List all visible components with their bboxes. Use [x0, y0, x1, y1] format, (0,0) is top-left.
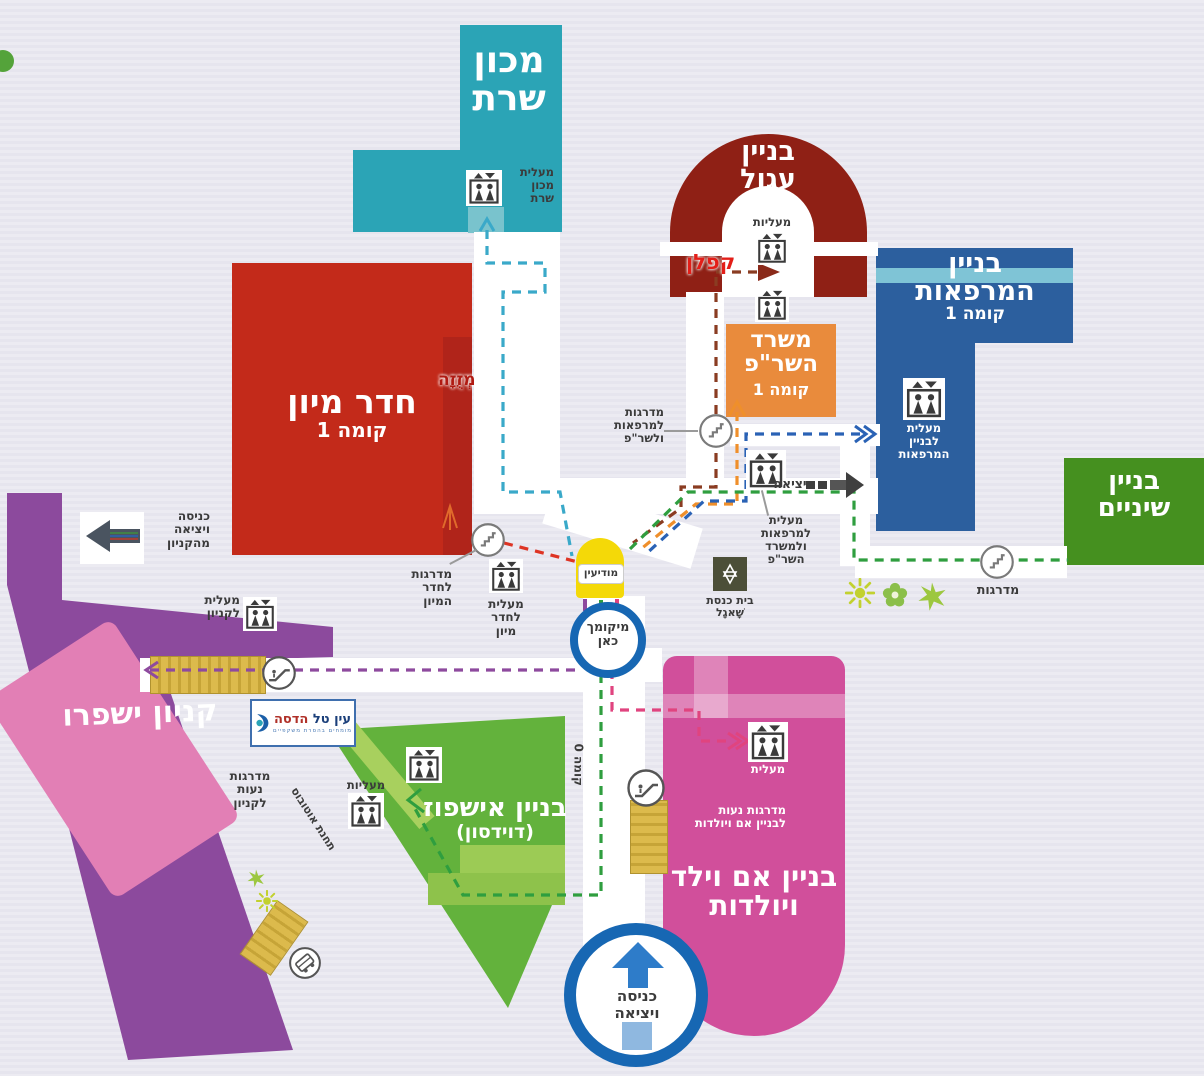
bus-station-icon: [288, 946, 322, 980]
elevator-icon-round-1: [755, 231, 789, 265]
corridor-sharap-vertical: [686, 292, 724, 482]
corridor-sharett-vertical: [474, 232, 560, 482]
building-dental-label: בניין שיניים: [1072, 468, 1196, 523]
exit-arrow-icon: [804, 470, 866, 500]
ein-tal-logo-tagline: מומחים בהסרת משקפיים: [273, 728, 352, 734]
stairs-dental-label: מדרגות: [966, 583, 1030, 597]
info-kiosk-label: מודיעין: [584, 568, 618, 580]
elevator-icon-davidson-1: [406, 747, 442, 783]
building-er-label: חדר מיון: [252, 385, 452, 420]
entrance-exit-label: כניסה ויציאה: [592, 988, 682, 1022]
elevator-sharett-label: מעלית מכון שרת: [502, 166, 554, 205]
synagogue-label: בית כנסת שָׁאגָל: [694, 595, 766, 620]
escalator-mother-child-label: מדרגות נעות לבניין אם ויולדות: [662, 804, 786, 830]
building-sharap-floor: קומה 1: [728, 382, 834, 399]
entrance-arrow-tail: [622, 1022, 652, 1050]
hospital-campus-map: מודיעין מיקומך כאן כניסה ויציאה מכון שרת…: [0, 0, 1204, 1076]
star-of-david-icon: [718, 562, 742, 586]
ein-tal-logo-name2: הדסה: [274, 712, 308, 727]
you-are-here-label: מיקומך כאן: [578, 620, 638, 648]
elevator-icon-clinics: [903, 378, 945, 420]
elevator-icon-mall: [243, 597, 277, 631]
elevators-round-label: מעליות: [742, 216, 802, 229]
escalator-band-mall: [150, 656, 266, 694]
building-sharett-label: מכון שרת: [448, 42, 570, 118]
elevator-icon-mother-child: [748, 722, 788, 762]
ein-tal-logo-icon: [254, 712, 270, 734]
stairs-icon-clinics: [698, 413, 734, 449]
building-clinics-floor: קומה 1: [880, 306, 1070, 324]
corridor-blue-route: [730, 424, 880, 446]
stairs-icon-er: [470, 522, 506, 558]
connector-stairs-clinics: [664, 430, 698, 432]
building-sharap-label: משרד השר"פ: [728, 328, 834, 376]
building-davidson-label: בניין אישפוז: [415, 795, 575, 822]
building-clinics-label: בניין המרפאות: [880, 250, 1070, 307]
elevator-mother-child-label: מעלית: [744, 763, 792, 776]
escalator-icon-mother-child: [626, 768, 666, 808]
elevator-clinics-label: מעלית לבניין המרפאות: [888, 422, 960, 461]
stairs-er-label: מדרגות לחדר המיון: [388, 568, 452, 608]
ein-tal-logo-box: עין טל הדסה מומחים בהסרת משקפיים: [250, 699, 356, 747]
flower-sun-icon-right: [845, 578, 875, 608]
elevator-er-label: מעלית לחדר מיון: [478, 598, 534, 638]
elevators-davidson-label: מעליות: [336, 779, 396, 792]
building-mother-child-band-h: [663, 694, 845, 718]
elevator-icon-round-2: [755, 288, 789, 322]
elevator-icon-er: [489, 559, 523, 593]
info-kiosk-label-box: מודיעין: [578, 564, 624, 584]
flower-star-icon-right: [916, 580, 948, 612]
corridor-to-dental: [855, 546, 1067, 578]
synagogue-icon: [713, 557, 747, 591]
corner-green-dot: [0, 50, 14, 72]
entrance-arrow-icon: [606, 938, 670, 988]
building-sharett-stub: [468, 207, 504, 233]
flower-star-icon-bus: [246, 868, 266, 888]
exit-label: יציאה: [770, 477, 810, 491]
elevator-icon-davidson-2: [348, 793, 384, 829]
flower-sun-icon-bus: [256, 890, 278, 912]
ein-tal-logo-name1: עין טל: [313, 712, 351, 727]
stairs-clinics-sharap-label: מדרגות למרפאות ולשר"פ: [590, 406, 664, 445]
building-davidson-sublabel: (דוידסון): [415, 823, 575, 843]
annotation-kaplan: קפלן: [686, 250, 735, 274]
building-er-floor: קומה 1: [252, 420, 452, 441]
floor0-label: קומה 0: [571, 735, 584, 795]
building-mall-label: קניון ישפרו: [55, 695, 226, 732]
building-mother-child-label: בניין אם וילד ויולדות: [668, 862, 840, 921]
mall-exit-label: כניסה ויציאה מהקניון: [146, 510, 210, 550]
building-mother-child-band-v: [694, 656, 728, 718]
escalator-icon-mall: [261, 655, 297, 691]
elevator-icon-sharett: [466, 170, 502, 206]
elevator-mall-label: מעלית לקניון: [180, 594, 240, 621]
elevator-clinics-sharap-label: מעלית למרפאות ולמשרד השר"פ: [752, 514, 820, 566]
building-round-label: בניין עגול: [700, 138, 836, 195]
mall-exit-arrow-icon: [84, 516, 142, 556]
stairs-icon-dental: [979, 544, 1015, 580]
annotation-mezuzah: מְזֻזָה: [438, 370, 476, 390]
flower-round-icon-right: [880, 580, 910, 610]
